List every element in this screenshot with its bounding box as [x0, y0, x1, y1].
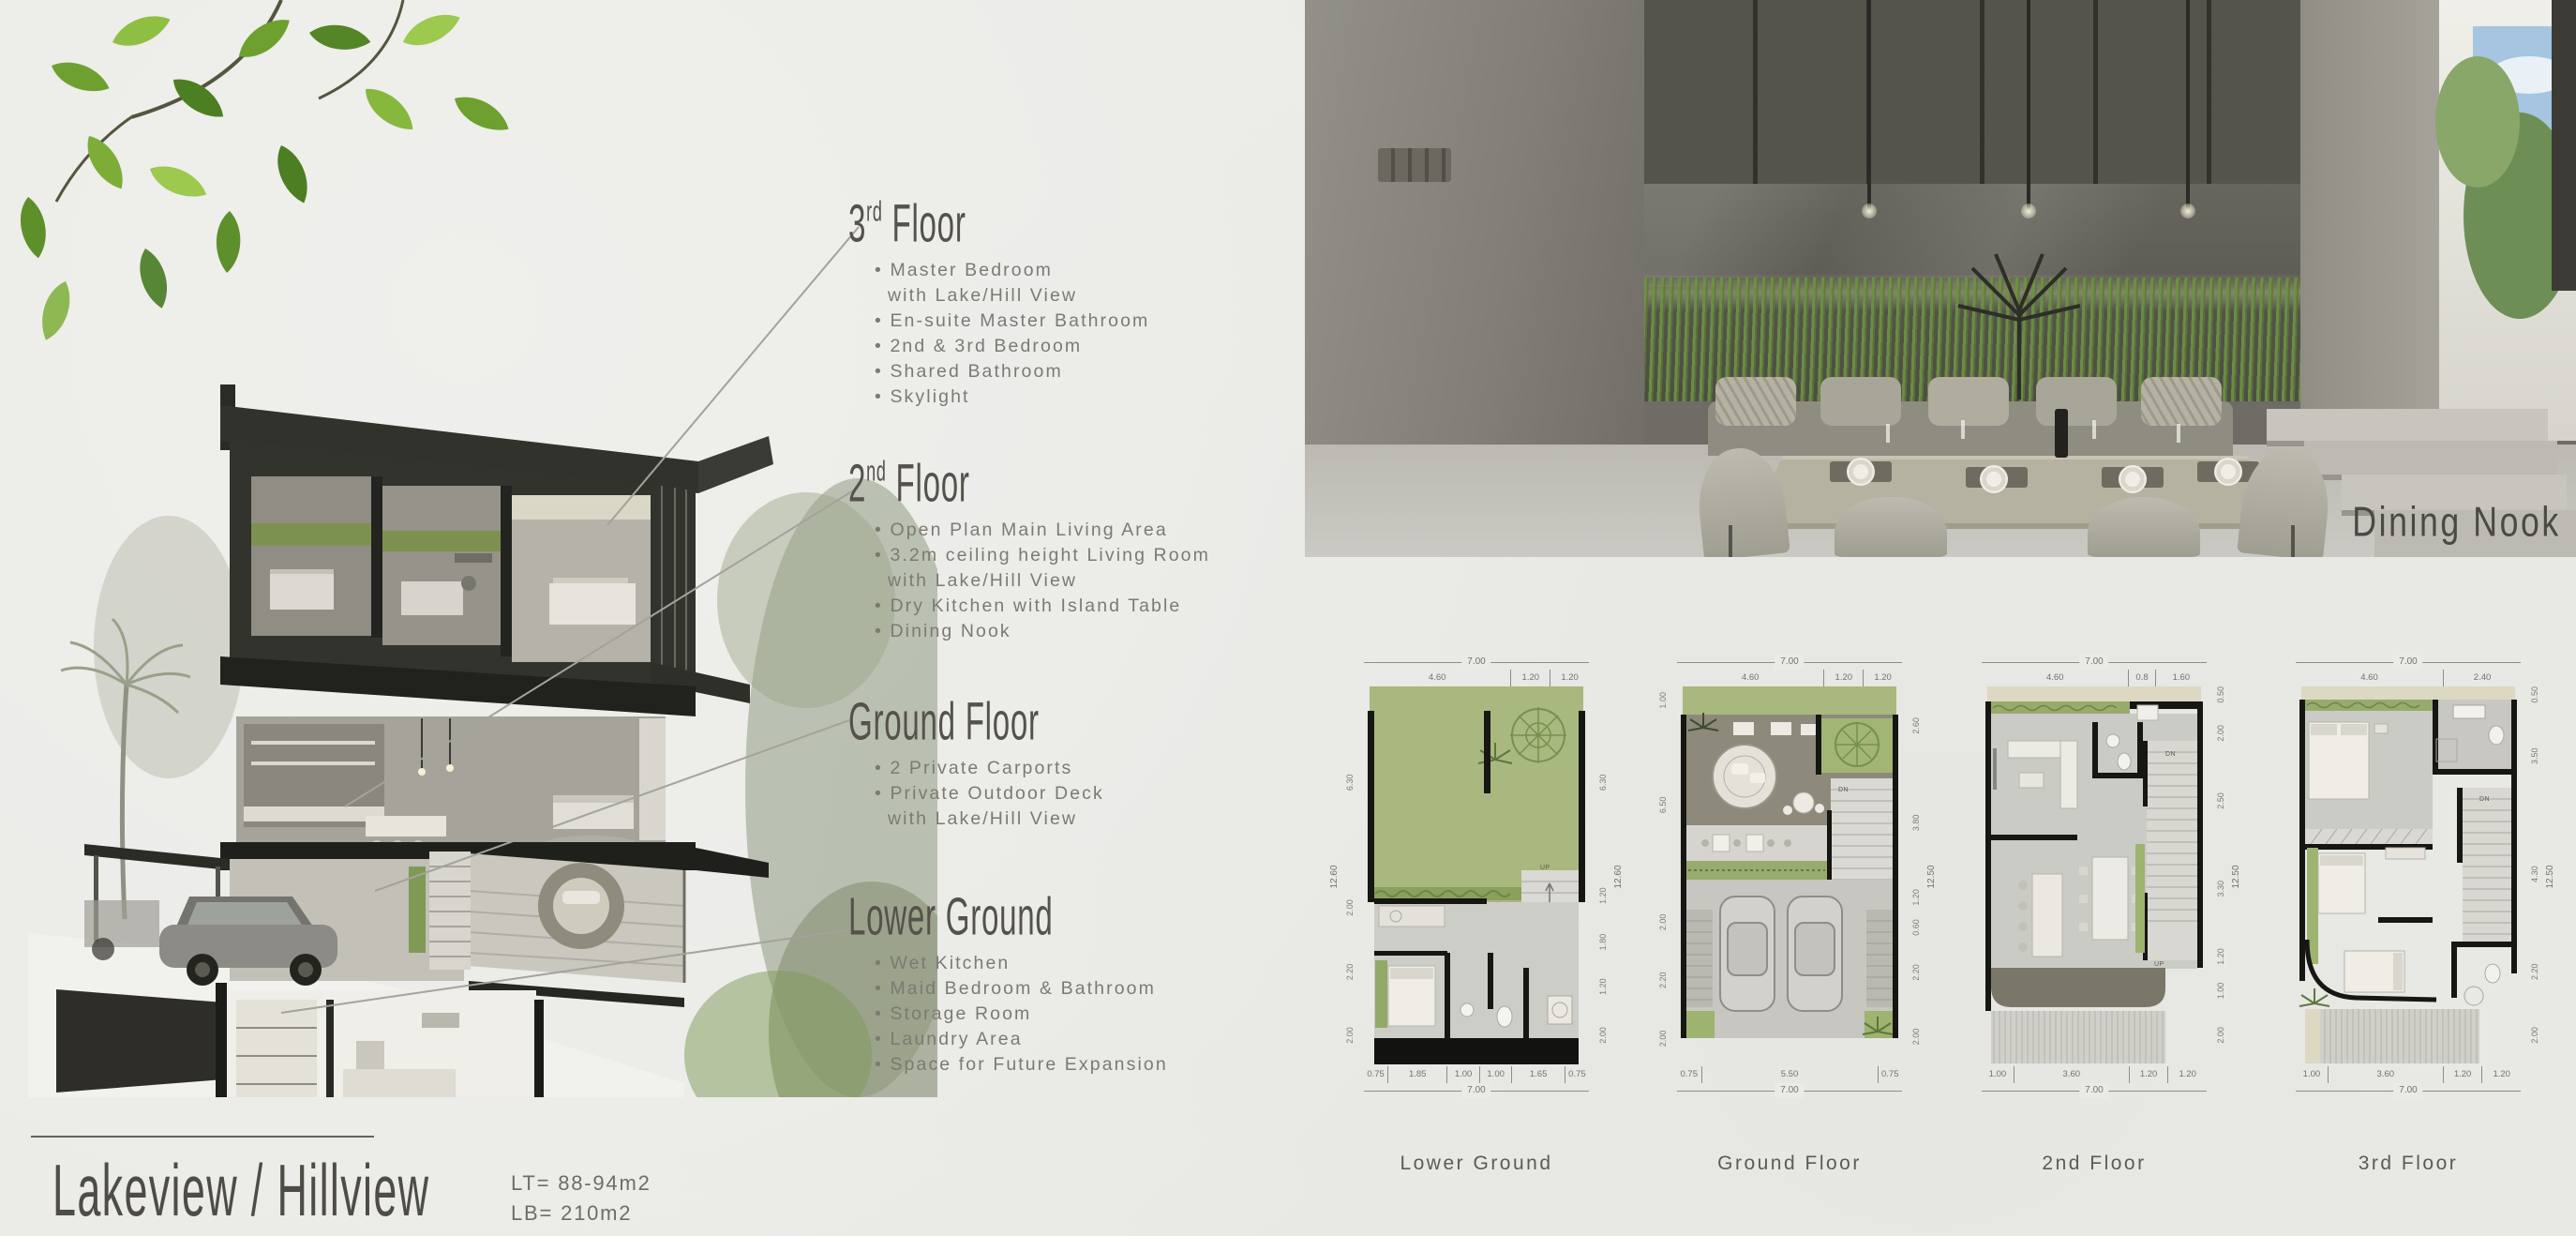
list-item: En-suite Master Bathroom	[875, 309, 1336, 334]
section-ground-floor: Ground Floor 2 Private Carports Private …	[848, 690, 1336, 832]
section-feature-list: Open Plan Main Living Area 3.2m ceiling …	[875, 518, 1336, 644]
dim-top-total: 7.00	[1982, 655, 2207, 670]
list-item: with Lake/Hill View	[875, 568, 1336, 594]
dim-top-segments: 4.602.40	[2296, 670, 2521, 686]
list-item: Space for Future Expansion	[875, 1052, 1336, 1078]
page-title: Lakeview / Hillview	[52, 1148, 429, 1232]
dim-left-segments: 1.006.502.002.202.00	[1656, 686, 1670, 1066]
list-item: Private Outdoor Deck	[875, 781, 1336, 806]
light-switch	[1378, 148, 1451, 182]
list-item: 2nd & 3rd Bedroom	[875, 334, 1336, 359]
plan-ground-floor: 7.00 4.601.201.20	[1677, 655, 1902, 1175]
wine-glass	[2177, 424, 2180, 443]
dim-top-segments: 4.601.201.20	[1677, 670, 1902, 686]
bench-seat	[1708, 401, 2233, 456]
dim-top-segments: 4.601.201.20	[1364, 670, 1589, 686]
dim-right-total: 12.50	[2231, 865, 2241, 888]
wine-glass	[2092, 420, 2096, 439]
plate	[1980, 465, 2008, 493]
dim-left-segments: 6.302.002.202.00	[1343, 686, 1356, 1066]
svg-text:UP: UP	[1540, 865, 1550, 871]
plate	[2214, 458, 2242, 486]
list-item: Dry Kitchen with Island Table	[875, 594, 1336, 619]
wall-pier	[2300, 0, 2439, 448]
svg-text:UP: UP	[2154, 961, 2164, 968]
section-2nd-floor: 2nd Floor Open Plan Main Living Area 3.2…	[848, 452, 1336, 644]
dim-bottom-segments: 1.003.601.201.20	[1982, 1066, 2207, 1083]
dim-right-segments: 6.301.201.801.202.00	[1596, 686, 1610, 1066]
dim-bottom-total: 7.00	[2296, 1083, 2521, 1098]
dim-top-segments: 4.600.81.60	[1982, 670, 2207, 686]
plan-lower-ground: 7.00 4.601.201.20 UP	[1364, 655, 1589, 1175]
land-area: LT= 88-94m2	[511, 1168, 651, 1198]
dim-top-total: 7.00	[1364, 655, 1589, 670]
list-item: Dining Nook	[875, 619, 1336, 644]
svg-text:DN: DN	[1838, 787, 1849, 793]
plan-caption: Ground Floor	[1677, 1153, 1902, 1175]
dim-top-total: 7.00	[2296, 655, 2521, 670]
list-item: Wet Kitchen	[875, 951, 1336, 976]
glass-planter-band	[1644, 184, 2300, 401]
dim-left-total: 12.60	[1329, 865, 1340, 888]
building-area: LB= 210m2	[511, 1198, 651, 1228]
plan-caption: 3rd Floor	[2296, 1153, 2521, 1175]
dim-right-segments: 0.503.504.302.202.00	[2528, 686, 2541, 1066]
dim-bottom-total: 7.00	[1364, 1083, 1589, 1098]
list-item: Open Plan Main Living Area	[875, 518, 1336, 543]
section-3rd-floor: 3rd Floor Master Bedroom with Lake/Hill …	[848, 192, 1336, 410]
pendant-light	[2186, 0, 2190, 211]
vase	[2055, 409, 2068, 458]
chair-leg	[1729, 525, 1732, 557]
dim-top-total: 7.00	[1677, 655, 1902, 670]
list-item: 2 Private Carports	[875, 756, 1336, 781]
list-item: with Lake/Hill View	[875, 283, 1336, 309]
plan-caption: 2nd Floor	[1982, 1153, 2207, 1175]
plan-3rd-floor: 7.00 4.602.40	[2296, 655, 2521, 1175]
dim-bottom-total: 7.00	[1677, 1083, 1902, 1098]
area-info: LT= 88-94m2 LB= 210m2	[511, 1168, 651, 1228]
dim-right-segments: 0.502.002.503.301.201.002.00	[2214, 686, 2227, 1066]
plate	[1847, 458, 1875, 486]
list-item: Skylight	[875, 384, 1336, 410]
section-title: Ground Floor	[848, 690, 1199, 752]
plate	[2119, 465, 2147, 493]
presentation-board: 3rd Floor Master Bedroom with Lake/Hill …	[0, 0, 2576, 1236]
dining-chair	[1835, 497, 1947, 557]
dim-bottom-segments: 1.003.601.201.20	[2296, 1066, 2521, 1083]
list-item: Master Bedroom	[875, 258, 1336, 283]
upper-cabinets	[1644, 0, 2300, 184]
svg-text:DN: DN	[2479, 796, 2490, 803]
wine-glass	[1886, 424, 1890, 443]
list-item: with Lake/Hill View	[875, 806, 1336, 832]
list-item: Laundry Area	[875, 1027, 1336, 1052]
list-item: Shared Bathroom	[875, 359, 1336, 384]
dining-chair	[2088, 497, 2200, 557]
list-item: Storage Room	[875, 1002, 1336, 1027]
dim-right-total: 12.50	[1926, 865, 1937, 888]
dim-right-total: 12.50	[2545, 865, 2555, 888]
section-feature-list: Master Bedroom with Lake/Hill View En-su…	[875, 258, 1336, 410]
list-item: 3.2m ceiling height Living Room	[875, 543, 1336, 568]
dining-nook-photo: Dining Nook	[1305, 0, 2576, 557]
section-title: 3rd Floor	[848, 192, 1199, 254]
photo-caption: Dining Nook	[2352, 499, 2561, 546]
pendant-light	[1867, 0, 1871, 211]
plan-drawing: DN UP	[1677, 686, 1902, 1066]
section-lower-ground: Lower Ground Wet Kitchen Maid Bedroom & …	[848, 885, 1336, 1078]
section-feature-list: Wet Kitchen Maid Bedroom & Bathroom Stor…	[875, 951, 1336, 1078]
plan-drawing: DN 0.503.504.302.202.00 12.50	[2296, 686, 2521, 1066]
wine-glass	[1961, 420, 1965, 439]
section-title: Lower Ground	[848, 885, 1199, 947]
pendant-light	[2027, 0, 2030, 211]
dim-right-total: 12.60	[1613, 865, 1624, 888]
svg-text:DN: DN	[2165, 751, 2176, 758]
dim-bottom-total: 7.00	[1982, 1083, 2207, 1098]
section-feature-list: 2 Private Carports Private Outdoor Deck …	[875, 756, 1336, 832]
plan-drawing: UP 6.302.002.202.00	[1364, 686, 1589, 1066]
section-title: 2nd Floor	[848, 452, 1199, 514]
title-divider	[31, 1136, 374, 1138]
plan-drawing: DN UP 0.502.002.503.301.201.002.00 12.50	[1982, 686, 2207, 1066]
plan-2nd-floor: 7.00 4.600.81.60	[1982, 655, 2207, 1175]
list-item: Maid Bedroom & Bathroom	[875, 976, 1336, 1002]
chair-leg	[2291, 525, 2295, 557]
dim-bottom-segments: 0.755.500.75	[1677, 1066, 1902, 1083]
window-frame	[2552, 0, 2576, 291]
dim-right-segments: 2.603.801.200.602.202.00	[1910, 686, 1923, 1066]
dim-bottom-segments: 0.751.851.001.001.650.75	[1364, 1066, 1589, 1083]
plan-caption: Lower Ground	[1364, 1153, 1589, 1175]
